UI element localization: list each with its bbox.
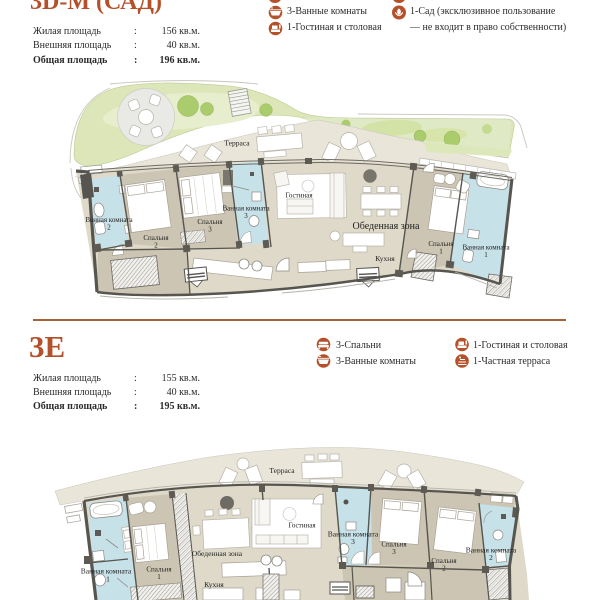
svg-text:2: 2 bbox=[442, 565, 446, 573]
svg-text:Гостиная: Гостиная bbox=[285, 192, 313, 200]
svg-text:2: 2 bbox=[489, 553, 493, 562]
svg-text:2: 2 bbox=[107, 224, 111, 232]
svg-text:Кухня: Кухня bbox=[375, 254, 395, 263]
svg-text:3: 3 bbox=[392, 548, 396, 556]
svg-text:3: 3 bbox=[244, 212, 248, 220]
svg-text:Гостиная: Гостиная bbox=[288, 522, 316, 530]
svg-text:1: 1 bbox=[439, 248, 443, 256]
svg-text:Терраса: Терраса bbox=[224, 139, 250, 148]
svg-text:2: 2 bbox=[154, 242, 158, 250]
svg-text:3: 3 bbox=[351, 537, 355, 546]
svg-text:1: 1 bbox=[157, 573, 161, 581]
svg-text:Кухня: Кухня bbox=[204, 580, 224, 589]
svg-text:3: 3 bbox=[208, 226, 212, 234]
svg-text:1: 1 bbox=[106, 575, 110, 584]
svg-text:Обеденная зона: Обеденная зона bbox=[192, 549, 243, 558]
svg-text:1: 1 bbox=[484, 251, 488, 259]
svg-text:Обеденная зона: Обеденная зона bbox=[353, 221, 420, 232]
svg-text:Терраса: Терраса bbox=[269, 466, 295, 475]
